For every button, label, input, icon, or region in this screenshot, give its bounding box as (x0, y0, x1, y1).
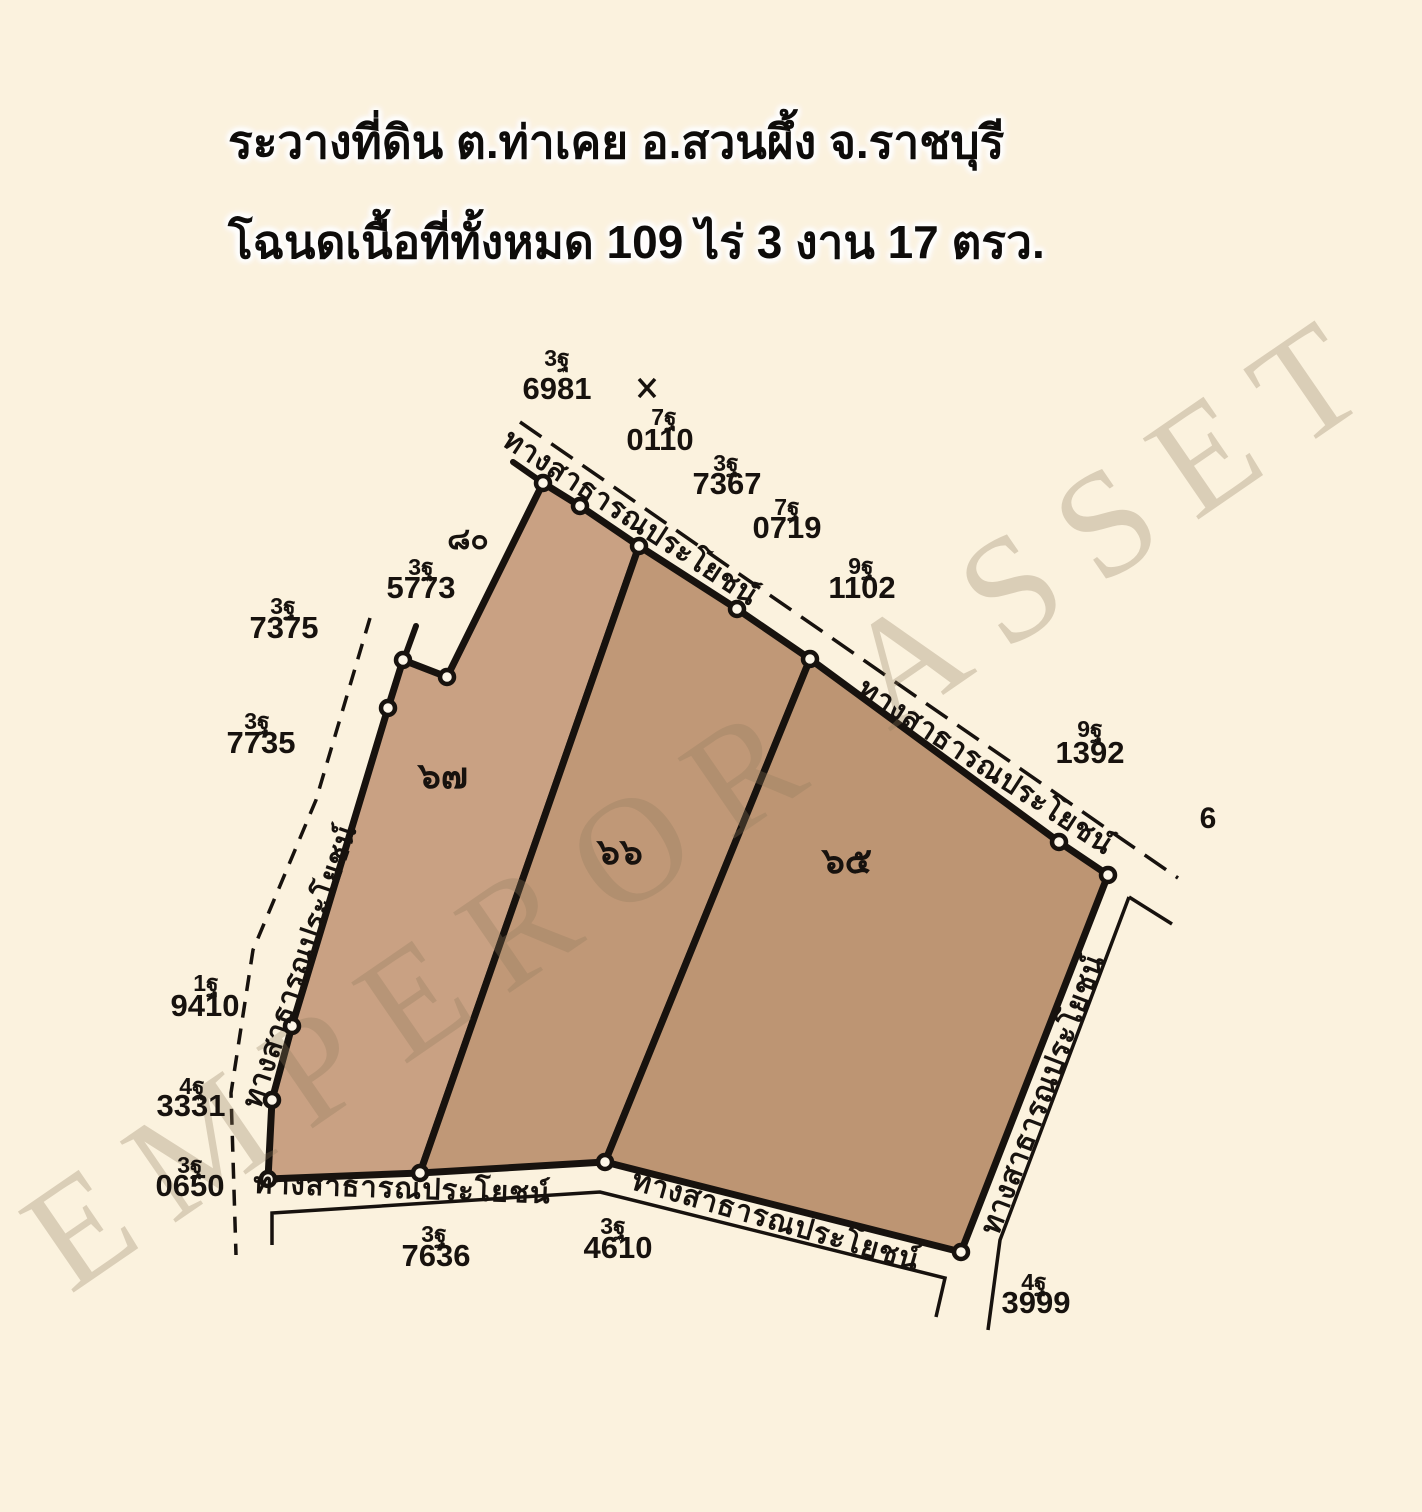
vertex-marker (396, 653, 410, 667)
svg-text:0110: 0110 (626, 422, 693, 457)
svg-text:7735: 7735 (227, 725, 296, 760)
vertex-marker (1052, 835, 1066, 849)
vertex-marker (440, 670, 454, 684)
svg-text:3ฐ: 3ฐ (544, 345, 570, 373)
title-line-2: โฉนดเนื้อที่ทั้งหมด 109 ไร่ 3 งาน 17 ตรว… (228, 192, 1045, 292)
svg-text:0719: 0719 (753, 510, 822, 545)
adjacent-parcel-northwest-label: ๘๐ (447, 523, 488, 556)
svg-text:1102: 1102 (828, 570, 895, 605)
svg-text:7367: 7367 (693, 466, 762, 501)
parcel-65-label: ๖๕ (820, 840, 872, 881)
vertex-marker (381, 701, 395, 715)
vertex-marker (1101, 868, 1115, 882)
svg-text:5773: 5773 (387, 570, 456, 605)
parcel-66-label: ๖๖ (595, 831, 643, 872)
svg-text:0650: 0650 (156, 1168, 225, 1203)
svg-text:6981: 6981 (523, 371, 592, 406)
svg-text:7636: 7636 (402, 1238, 471, 1273)
adjacent-parcel-east-label: 6 (1200, 802, 1217, 835)
title-block: ระวางที่ดิน ต.ท่าเคย อ.สวนผึ้ง จ.ราชบุรี… (228, 92, 1045, 292)
vertex-marker (598, 1155, 612, 1169)
svg-text:1392: 1392 (1056, 735, 1125, 770)
svg-text:9410: 9410 (171, 988, 240, 1023)
parcel-67-label: ๖๗ (416, 755, 468, 796)
svg-text:7375: 7375 (250, 610, 319, 645)
vertex-marker (803, 652, 817, 666)
svg-text:4610: 4610 (584, 1230, 653, 1265)
vertex-marker (954, 1245, 968, 1259)
title-line-1: ระวางที่ดิน ต.ท่าเคย อ.สวนผึ้ง จ.ราชบุรี (228, 92, 1045, 192)
svg-text:3331: 3331 (157, 1088, 226, 1123)
svg-text:3999: 3999 (1002, 1285, 1071, 1320)
cadastral-map-page: EMPEROR ASSET 3ฐ 6981 (0, 0, 1422, 1512)
